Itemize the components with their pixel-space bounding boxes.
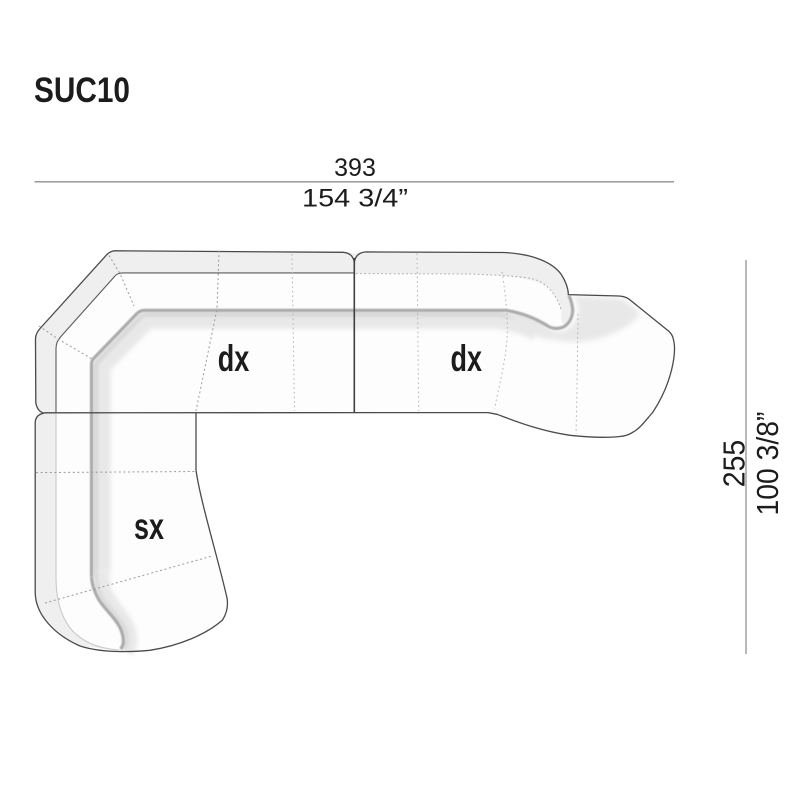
svg-text:SUC10: SUC10 [34,71,130,110]
svg-text:393: 393 [334,154,376,182]
svg-text:sx: sx [134,506,164,547]
svg-text:dx: dx [218,338,250,379]
svg-text:100 3/8”: 100 3/8” [750,412,785,516]
svg-text:255: 255 [718,440,752,488]
svg-text:154 3/4”: 154 3/4” [302,185,408,213]
svg-text:dx: dx [451,338,483,379]
